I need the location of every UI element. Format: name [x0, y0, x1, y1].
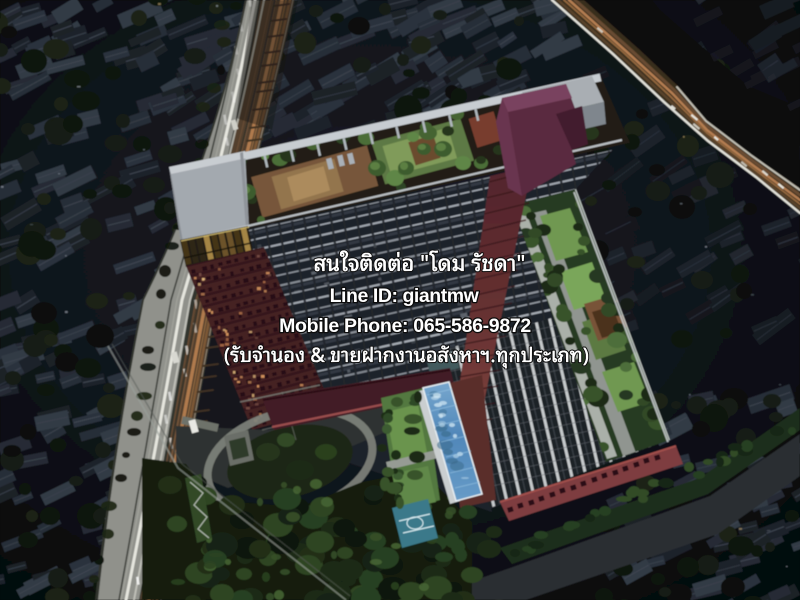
- svg-text:Line ID: giantmw: Line ID: giantmw: [330, 285, 480, 307]
- svg-text:Mobile Phone: 065-586-9872: Mobile Phone: 065-586-9872: [279, 315, 531, 337]
